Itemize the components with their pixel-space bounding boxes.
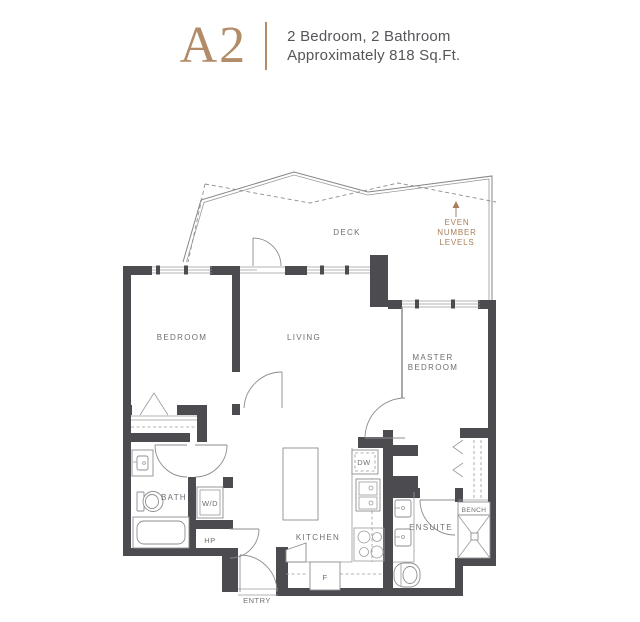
door-hall-vestibule <box>195 445 227 477</box>
room-label-master-line2: BEDROOM <box>408 363 458 372</box>
ensuite-toilet <box>394 563 420 587</box>
bathtub <box>133 517 189 548</box>
floorplan-page: A2 2 Bedroom, 2 Bathroom Approximately 8… <box>0 0 640 622</box>
room-label-ensuite: ENSUITE <box>409 523 453 532</box>
even-number-levels-note: EVEN NUMBER LEVELS <box>437 201 476 247</box>
window-master-bedroom <box>402 300 480 309</box>
window-living-left <box>240 267 257 273</box>
even-levels-line2: NUMBER <box>437 228 476 237</box>
door-master-bedroom <box>365 307 405 438</box>
room-label-kitchen: KITCHEN <box>296 533 340 542</box>
window-bedroom <box>152 266 212 275</box>
stove-burners <box>354 528 384 561</box>
even-levels-line3: LEVELS <box>439 238 474 247</box>
even-levels-line1: EVEN <box>445 218 470 227</box>
door-bath <box>155 445 187 477</box>
label-entry: ENTRY <box>243 596 271 605</box>
floor-plan-svg: DECK EVEN NUMBER LEVELS <box>0 0 640 622</box>
kitchen-island <box>283 448 318 520</box>
label-heat-pump: HP <box>204 536 215 545</box>
label-bench: BENCH <box>462 507 487 514</box>
deck-door-threshold <box>257 267 285 273</box>
label-washer-dryer: W/D <box>202 499 218 508</box>
room-label-master-line1: MASTER <box>412 353 453 362</box>
up-arrow-icon <box>453 201 460 217</box>
room-label-living: LIVING <box>287 333 321 342</box>
corner-pantry <box>286 543 306 562</box>
door-entry <box>238 555 278 595</box>
bifold-door-chevron <box>140 393 168 415</box>
label-dishwasher: DW <box>357 458 371 467</box>
room-label-bedroom: BEDROOM <box>157 333 207 342</box>
kitchen-sink <box>356 479 380 511</box>
door-deck <box>253 238 281 266</box>
room-label-deck: DECK <box>333 228 360 237</box>
room-label-bath: BATH <box>161 493 187 502</box>
door-bedroom <box>244 372 282 408</box>
bath-toilet <box>137 492 163 512</box>
shower-drain <box>471 533 478 540</box>
bath-vanity-sink <box>132 450 153 476</box>
window-living-right <box>307 266 370 275</box>
label-fridge: F <box>322 573 327 582</box>
